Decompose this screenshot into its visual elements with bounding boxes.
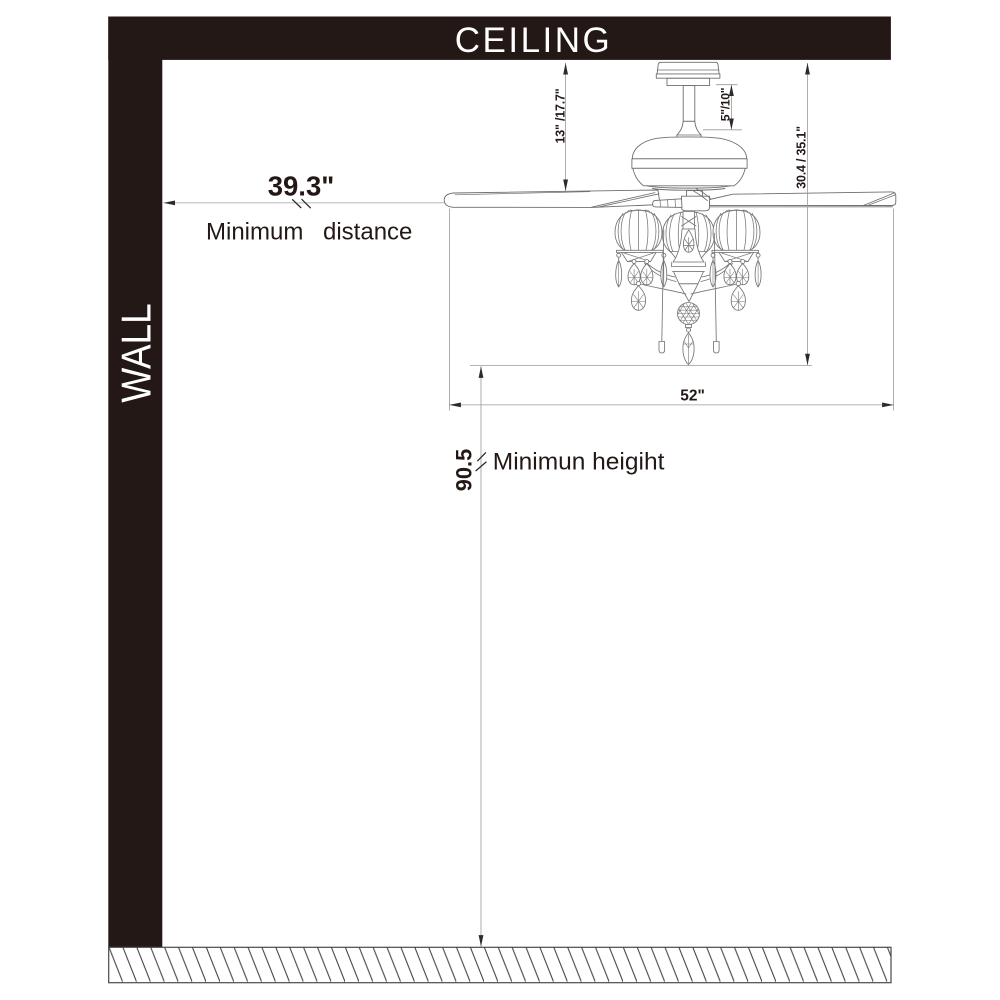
svg-text:13" /17.7": 13" /17.7" [554,88,568,143]
svg-text:Minimun heigiht: Minimun heigiht [493,448,665,475]
svg-text:52": 52" [680,387,705,404]
svg-text:90.5: 90.5 [451,449,476,491]
svg-text:Minimum distance: Minimum distance [206,218,412,245]
svg-text:5"/10": 5"/10" [719,88,733,121]
svg-text:39.3": 39.3" [268,171,335,202]
svg-text:30.4 / 35.1": 30.4 / 35.1" [795,126,809,189]
svg-text:CEILING: CEILING [455,21,613,60]
svg-text:WALL: WALL [113,303,160,402]
